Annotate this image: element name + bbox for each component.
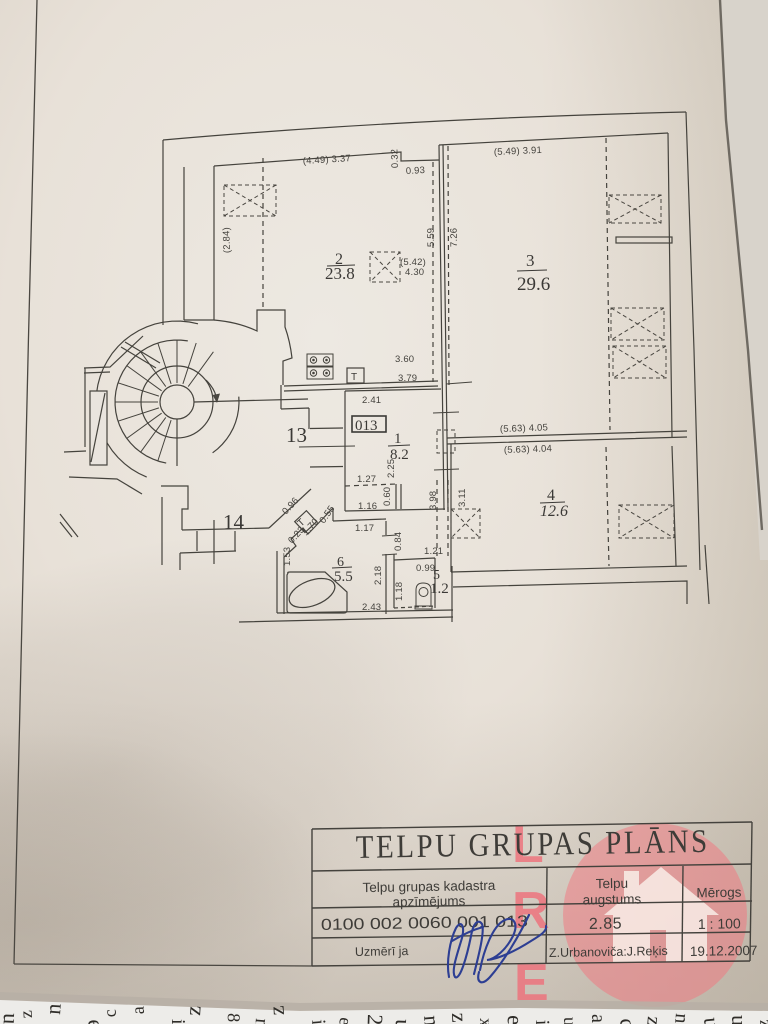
- svg-text:3.60: 3.60: [395, 354, 414, 365]
- svg-text:7.26: 7.26: [449, 228, 460, 247]
- svg-text:2: 2: [363, 1014, 388, 1024]
- svg-text:(2.84): (2.84): [221, 227, 233, 253]
- svg-text:Z.Urbanoviča:J.Reķis: Z.Urbanoviča:J.Reķis: [549, 944, 668, 960]
- svg-text:TELPU GRUPAS PLĀNS: TELPU GRUPAS PLĀNS: [356, 824, 711, 866]
- svg-text:5.59: 5.59: [426, 228, 437, 247]
- svg-text:u: u: [391, 1019, 416, 1024]
- svg-text:013: 013: [355, 418, 378, 434]
- svg-text:3.98: 3.98: [428, 491, 439, 510]
- svg-text:1.18: 1.18: [394, 582, 405, 601]
- svg-text:4: 4: [547, 487, 555, 504]
- svg-text:3.79: 3.79: [398, 373, 417, 384]
- svg-text:19.12.2007: 19.12.2007: [690, 943, 758, 959]
- svg-text:e: e: [503, 1015, 528, 1024]
- svg-text:2.43: 2.43: [362, 602, 381, 613]
- svg-text:z: z: [16, 1010, 36, 1019]
- svg-text:z: z: [756, 1019, 768, 1024]
- svg-text:0.93: 0.93: [406, 165, 426, 177]
- svg-text:c: c: [100, 1009, 120, 1018]
- svg-text:Telpu: Telpu: [596, 876, 629, 892]
- svg-text:12.6: 12.6: [540, 503, 568, 520]
- svg-text:n: n: [670, 1013, 693, 1024]
- svg-text:z: z: [447, 1012, 472, 1023]
- svg-text:a: a: [128, 1006, 148, 1015]
- svg-text:8.2: 8.2: [390, 447, 409, 463]
- svg-text:n: n: [40, 1003, 66, 1016]
- svg-text:Uzmērī ja: Uzmērī ja: [355, 944, 409, 959]
- svg-text:3.11: 3.11: [457, 488, 468, 507]
- svg-text:(5.49) 3.91: (5.49) 3.91: [494, 145, 543, 158]
- svg-text:1.2: 1.2: [430, 581, 449, 597]
- svg-text:i: i: [167, 1019, 189, 1024]
- svg-text:(5.63) 4.04: (5.63) 4.04: [504, 443, 553, 456]
- svg-text:u: u: [699, 1016, 725, 1024]
- svg-text:1.27: 1.27: [357, 474, 376, 485]
- svg-text:(5.63) 4.05: (5.63) 4.05: [500, 422, 549, 435]
- svg-text:0.60: 0.60: [382, 487, 393, 506]
- svg-text:8: 8: [224, 1013, 244, 1023]
- svg-text:i: i: [307, 1019, 329, 1024]
- svg-text:Telpu grupas kadastra: Telpu grupas kadastra: [362, 878, 496, 895]
- svg-text:2.18: 2.18: [373, 566, 384, 585]
- svg-text:apzīmējums: apzīmējums: [392, 893, 465, 909]
- svg-text:0100 002 0060 001 013: 0100 002 0060 001 013: [321, 913, 528, 934]
- svg-text:i: i: [531, 1019, 553, 1024]
- svg-text:Mērogs: Mērogs: [696, 885, 742, 901]
- svg-text:1.21: 1.21: [424, 546, 443, 557]
- svg-text:augstums: augstums: [583, 891, 642, 907]
- svg-text:2.41: 2.41: [362, 395, 381, 406]
- svg-text:0.32: 0.32: [389, 149, 401, 169]
- svg-text:1 : 100: 1 : 100: [698, 915, 741, 932]
- svg-text:3: 3: [526, 251, 535, 270]
- svg-text:29.6: 29.6: [517, 274, 550, 295]
- svg-text:2.85: 2.85: [589, 915, 622, 933]
- svg-text:n: n: [419, 1014, 445, 1024]
- svg-text:e: e: [83, 1018, 109, 1024]
- svg-text:1: 1: [394, 431, 402, 447]
- svg-text:5.5: 5.5: [334, 569, 353, 585]
- svg-text:z: z: [180, 1005, 206, 1017]
- svg-text:1.16: 1.16: [358, 501, 377, 512]
- svg-text:u: u: [727, 1015, 752, 1024]
- svg-text:u: u: [560, 1017, 580, 1024]
- svg-text:n: n: [250, 1018, 273, 1024]
- svg-text:13: 13: [286, 423, 307, 447]
- svg-text:0.84: 0.84: [393, 532, 404, 551]
- svg-text:T: T: [351, 372, 357, 383]
- svg-text:14: 14: [223, 510, 245, 534]
- svg-text:z: z: [264, 1005, 289, 1016]
- svg-text:e: e: [335, 1017, 356, 1024]
- svg-text:x: x: [476, 1018, 496, 1024]
- svg-text:z: z: [642, 1016, 665, 1024]
- svg-text:23.8: 23.8: [325, 264, 355, 283]
- svg-text:c: c: [615, 1017, 641, 1024]
- svg-text:4.30: 4.30: [405, 267, 424, 278]
- svg-text:1.17: 1.17: [355, 523, 374, 534]
- svg-text:1.53: 1.53: [282, 547, 293, 566]
- svg-text:a: a: [587, 1014, 609, 1023]
